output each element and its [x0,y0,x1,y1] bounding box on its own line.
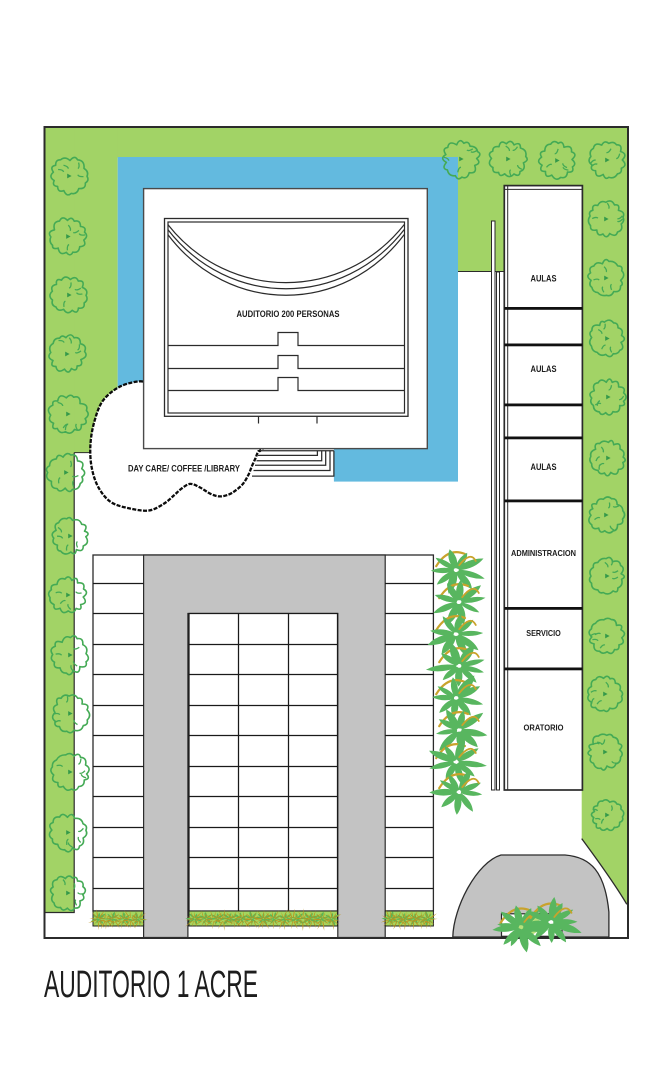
svg-text:AUDITORIO 1 ACRE: AUDITORIO 1 ACRE [44,964,258,1006]
svg-text:AULAS: AULAS [531,462,557,472]
svg-text:SERVICIO: SERVICIO [526,629,561,638]
svg-text:AULAS: AULAS [531,364,557,374]
svg-text:DAY CARE/ COFFEE /LIBRARY: DAY CARE/ COFFEE /LIBRARY [128,464,240,474]
svg-text:AULAS: AULAS [531,274,557,284]
svg-text:AUDITORIO 200 PERSONAS: AUDITORIO 200 PERSONAS [237,309,340,320]
svg-text:ADMINISTRACION: ADMINISTRACION [511,549,576,558]
svg-text:ORATORIO: ORATORIO [524,723,564,733]
